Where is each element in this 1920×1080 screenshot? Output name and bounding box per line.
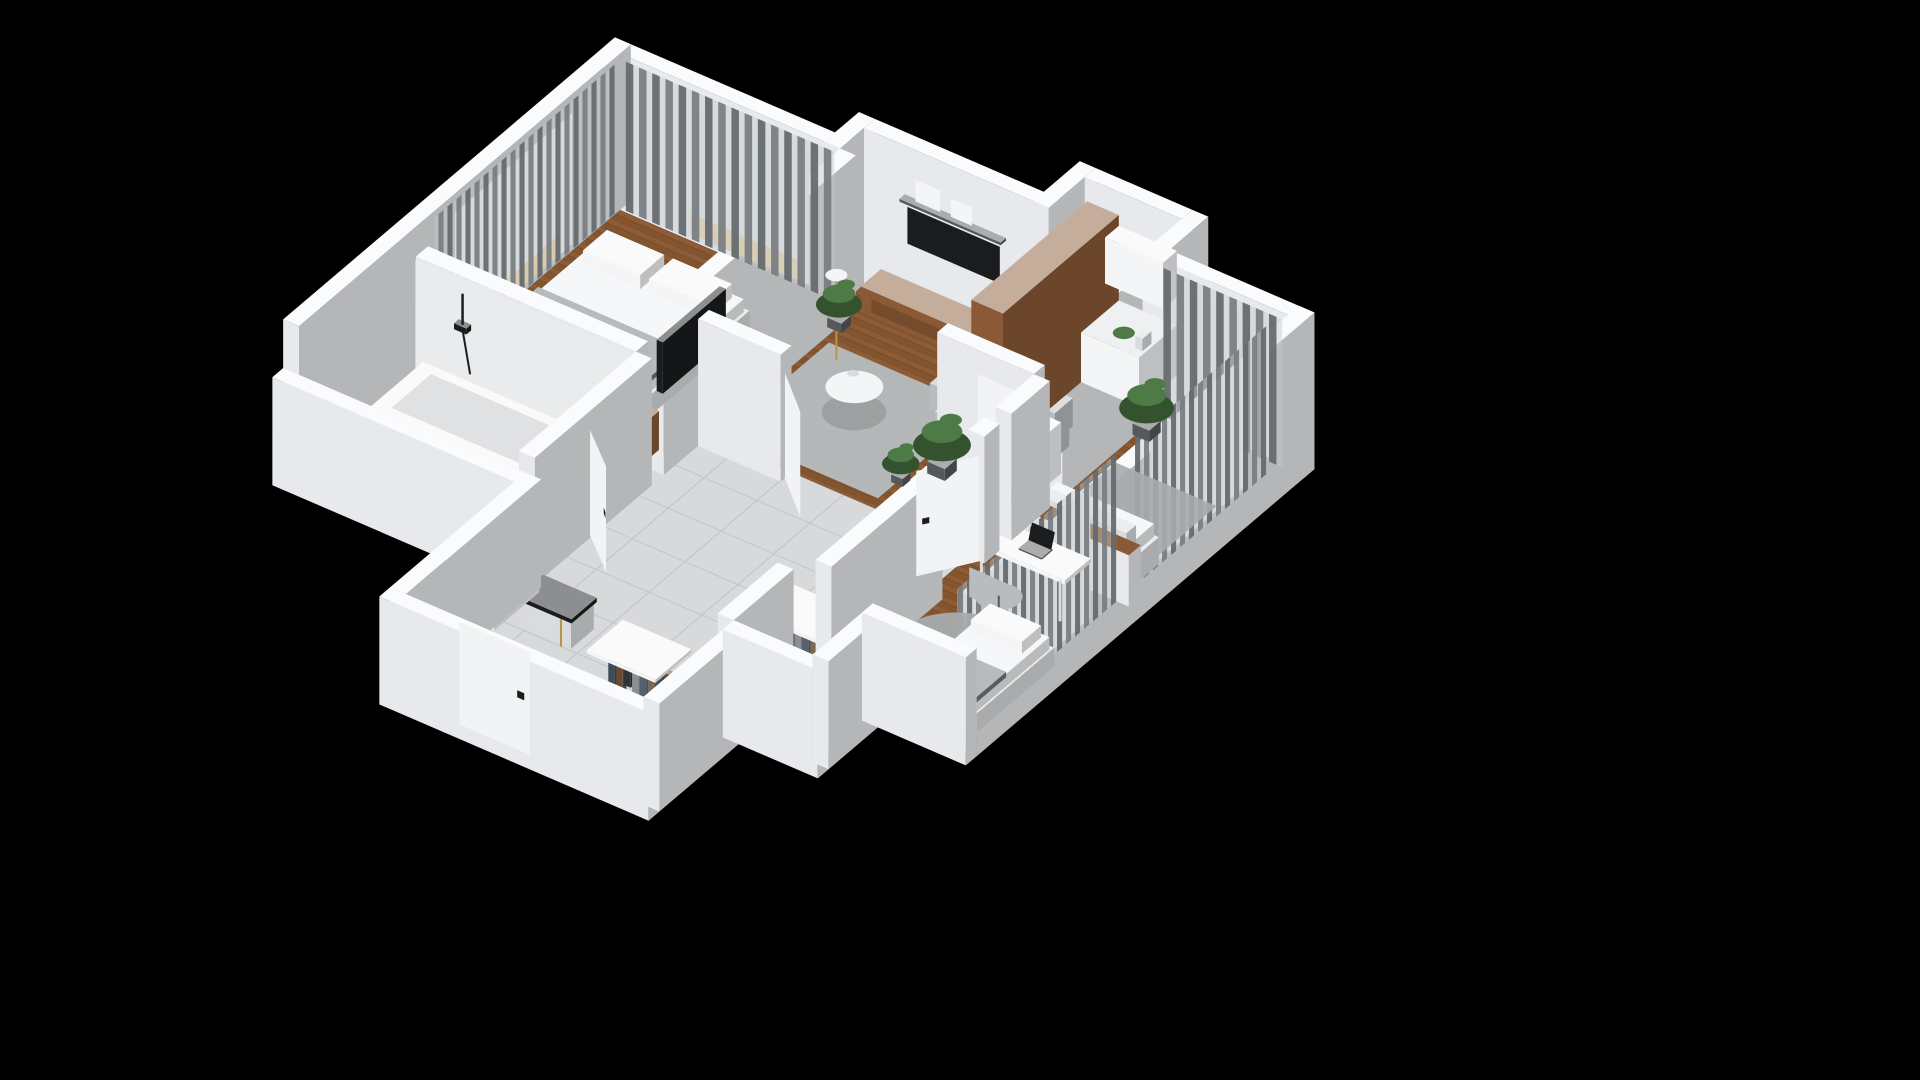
- kitchen-bowl: [1113, 327, 1135, 339]
- apartment-model: [272, 37, 1314, 820]
- floor-plan-render: [0, 0, 1920, 1080]
- coffee-table-vase: [847, 370, 859, 377]
- floor-lamp-shade: [825, 269, 847, 281]
- scene-background: [0, 0, 1920, 1080]
